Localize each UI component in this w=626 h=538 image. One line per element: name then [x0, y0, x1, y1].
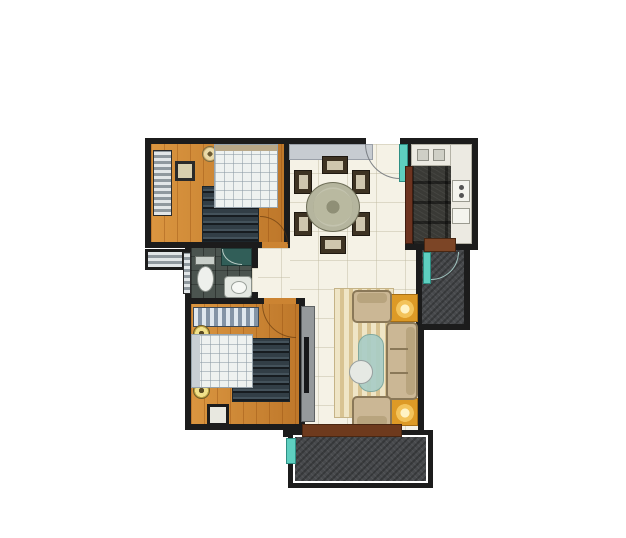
- toilet-tank: [195, 256, 215, 265]
- lamp-side-table-top: [390, 294, 418, 322]
- balcony-floor: [295, 437, 426, 481]
- bed-second-pillows: [192, 335, 200, 387]
- kitchen-sliding-door: [405, 166, 413, 244]
- sofa-right: [386, 322, 418, 400]
- bathroom-louver-window: [183, 252, 191, 294]
- dining-chair-left-top: [294, 170, 312, 194]
- utility-door-leaf: [423, 252, 431, 284]
- sink-bowl-left: [417, 149, 429, 161]
- lamp-side-table-bottom: [390, 398, 418, 426]
- bed-main-headboard: [215, 145, 277, 151]
- headboard-dresser-second: [193, 307, 259, 327]
- table-lamp: [396, 404, 414, 422]
- kitchen-appliance: [452, 208, 470, 224]
- coffee-table-round: [349, 360, 373, 384]
- chair-pad: [356, 217, 365, 231]
- armchair-top: [352, 290, 392, 323]
- bathroom-door-opening: [252, 268, 258, 292]
- tv-screen: [304, 337, 309, 393]
- chair-pad: [299, 175, 308, 189]
- bed-main: [214, 144, 278, 208]
- kitchen-worktop: [411, 166, 451, 244]
- sofa-cushion-line: [390, 348, 408, 350]
- balcony-threshold: [302, 424, 402, 437]
- tv-cabinet: [301, 306, 315, 422]
- room-balcony: [288, 430, 433, 488]
- chair-pad: [356, 175, 365, 189]
- wardrobe-main: [153, 150, 172, 216]
- kitchen-service-threshold: [424, 238, 456, 252]
- chair-pad: [327, 161, 343, 170]
- washbasin: [224, 276, 252, 298]
- stool-second-bedroom: [207, 404, 229, 426]
- hob-burner: [459, 185, 464, 190]
- floor-plan-canvas: [0, 0, 626, 538]
- shower-curtain-arc: [222, 249, 242, 265]
- kitchen-sink-counter: [411, 144, 453, 166]
- balcony-door-edge: [286, 438, 296, 464]
- bed-second: [191, 334, 253, 388]
- shower-corner: [221, 248, 252, 266]
- chair-pad: [299, 217, 308, 231]
- armchair-back: [357, 293, 387, 303]
- kitchen-hob: [452, 180, 470, 202]
- table-lamp: [396, 300, 414, 318]
- dining-table: [306, 182, 360, 232]
- hob-burner: [459, 193, 464, 198]
- chair-pad: [325, 240, 341, 249]
- toilet-bowl: [197, 266, 214, 292]
- sink-bowl-right: [433, 149, 445, 161]
- dining-chair-top: [322, 156, 348, 174]
- dining-chair-bottom: [320, 236, 346, 254]
- nightstand-main: [175, 161, 195, 181]
- dining-chair-right-top: [352, 170, 370, 194]
- sofa-back: [406, 327, 415, 395]
- ac-platform: [145, 249, 185, 270]
- sofa-cushion-line: [390, 372, 408, 374]
- basin-bowl: [231, 281, 247, 294]
